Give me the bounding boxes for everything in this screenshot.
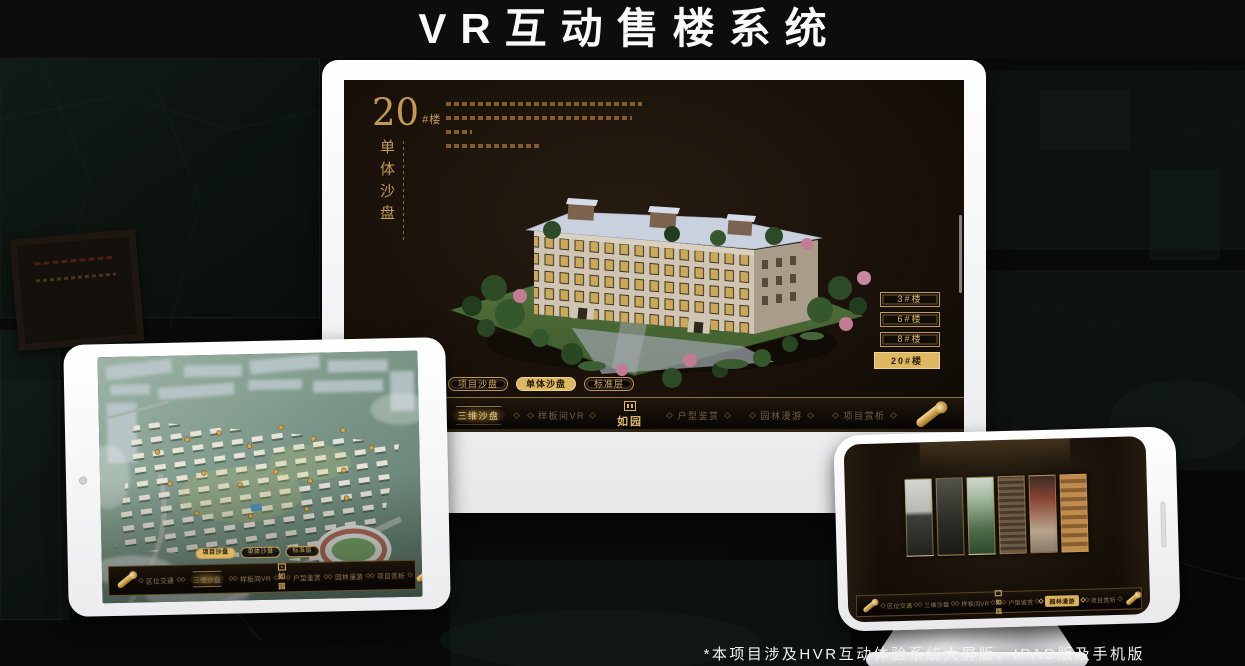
phone-mockup: 区位交通 三维沙盘 样板间VR 如园 户型鉴赏 园林漫游 项目赏析 xyxy=(833,426,1180,631)
brand-logo[interactable]: 如园 xyxy=(603,401,657,429)
building-number-suffix: #楼 xyxy=(422,111,441,127)
tablet-nav-item-floorplans[interactable]: 户型鉴赏 xyxy=(286,572,328,583)
gallery-panel[interactable] xyxy=(936,477,965,556)
description-line xyxy=(446,116,632,120)
floor-button-group: 3#楼 6#楼 8#楼 20#楼 xyxy=(874,292,940,369)
subtitle-divider xyxy=(403,141,404,241)
nav-item-project-gallery[interactable]: 项目赏析 xyxy=(823,409,906,422)
phone-nav-bar: 区位交通 三维沙盘 样板间VR 如园 户型鉴赏 园林漫游 项目赏析 xyxy=(856,587,1143,617)
sub-tab-group: 项目沙盘 单体沙盘 标准层 xyxy=(448,377,634,391)
nav-item-model-room-vr[interactable]: 样板间VR xyxy=(520,409,603,422)
phone-speaker xyxy=(1160,502,1166,548)
gallery-panel[interactable] xyxy=(1029,475,1058,554)
background-panel xyxy=(0,330,60,620)
header: VR互动售楼系统 xyxy=(0,0,1245,58)
building-subtitle-vertical: 单体沙盘 xyxy=(376,139,397,249)
nav-item-3d-sandtable[interactable]: 三维沙盘 xyxy=(437,406,520,425)
nav-item-floorplans[interactable]: 户型鉴赏 xyxy=(657,409,740,422)
tablet-nav-item-location[interactable]: 区位交通 xyxy=(139,575,181,586)
phone-nav-item-3d-sandtable[interactable]: 三维沙盘 xyxy=(918,599,955,609)
description-line xyxy=(446,102,642,106)
scroll-icon[interactable] xyxy=(1122,596,1144,602)
tablet-nav-item-3d-sandtable[interactable]: 三维沙盘 xyxy=(181,571,233,588)
seal-icon xyxy=(624,401,636,411)
scroll-icon[interactable] xyxy=(113,577,139,584)
tab-standard-floor[interactable]: 标准层 xyxy=(584,377,634,391)
tablet-nav-item-project-gallery[interactable]: 项目赏析 xyxy=(370,570,412,581)
gallery-panel[interactable] xyxy=(998,475,1027,554)
stage: VR互动售楼系统 20 #楼 单体沙盘 xyxy=(0,0,1245,666)
scroll-icon[interactable] xyxy=(412,571,422,578)
phone-nav-item-model-room-vr[interactable]: 样板间VR xyxy=(955,598,995,608)
floor-button-8[interactable]: 8#楼 xyxy=(880,332,940,347)
floor-button-3[interactable]: 3#楼 xyxy=(880,292,940,307)
building-model-illustration[interactable] xyxy=(422,138,892,393)
nav-item-garden-tour[interactable]: 园林漫游 xyxy=(740,409,823,422)
interior-ceiling xyxy=(920,438,1071,468)
tablet-nav-item-model-room-vr[interactable]: 样板间VR xyxy=(233,573,278,584)
gallery-panel[interactable] xyxy=(967,476,996,555)
phone-nav-item-project-gallery[interactable]: 项目赏析 xyxy=(1085,594,1122,604)
tablet-mockup: 项目沙盘 单体沙盘 标准层 区位交通 三维沙盘 样板间VR 如园 户型鉴赏 园林… xyxy=(63,337,451,617)
seal-icon xyxy=(995,590,1002,596)
background-plaque xyxy=(9,229,144,352)
tablet-tab-project-sandtable[interactable]: 项目沙盘 xyxy=(195,547,235,559)
floor-button-6[interactable]: 6#楼 xyxy=(880,312,940,327)
gallery-panel[interactable] xyxy=(1059,474,1088,553)
phone-nav-item-garden-tour[interactable]: 园林漫游 xyxy=(1039,594,1084,606)
floor-button-20[interactable]: 20#楼 xyxy=(874,352,940,369)
screen-scrollbar[interactable] xyxy=(959,215,962,293)
tab-project-sandtable[interactable]: 项目沙盘 xyxy=(448,377,508,391)
phone-nav-item-floorplans[interactable]: 户型鉴赏 xyxy=(1002,597,1039,607)
gallery-panel[interactable] xyxy=(905,478,934,557)
tablet-screen: 项目沙盘 单体沙盘 标准层 区位交通 三维沙盘 样板间VR 如园 户型鉴赏 园林… xyxy=(97,351,422,604)
tablet-tab-standard-floor[interactable]: 标准层 xyxy=(285,546,319,558)
page-title: VR互动售楼系统 xyxy=(404,8,840,50)
scroll-icon[interactable] xyxy=(859,603,881,609)
camera-icon xyxy=(79,477,87,485)
scroll-icon[interactable] xyxy=(906,411,954,420)
footnote: *本项目涉及HVR互动体验系统大屏版、IPAD版及手机版 xyxy=(704,643,1145,664)
phone-screen: 区位交通 三维沙盘 样板间VR 如园 户型鉴赏 园林漫游 项目赏析 xyxy=(844,436,1151,622)
phone-nav-item-location[interactable]: 区位交通 xyxy=(881,600,918,610)
building-number: 20 xyxy=(372,94,419,131)
tablet-nav-item-garden-tour[interactable]: 园林漫游 xyxy=(328,571,370,582)
tab-single-sandtable[interactable]: 单体沙盘 xyxy=(516,377,576,391)
gallery-panels xyxy=(905,474,1089,557)
seal-icon xyxy=(278,563,286,570)
tablet-tab-single-sandtable[interactable]: 单体沙盘 xyxy=(240,547,280,559)
description-line xyxy=(446,130,472,134)
